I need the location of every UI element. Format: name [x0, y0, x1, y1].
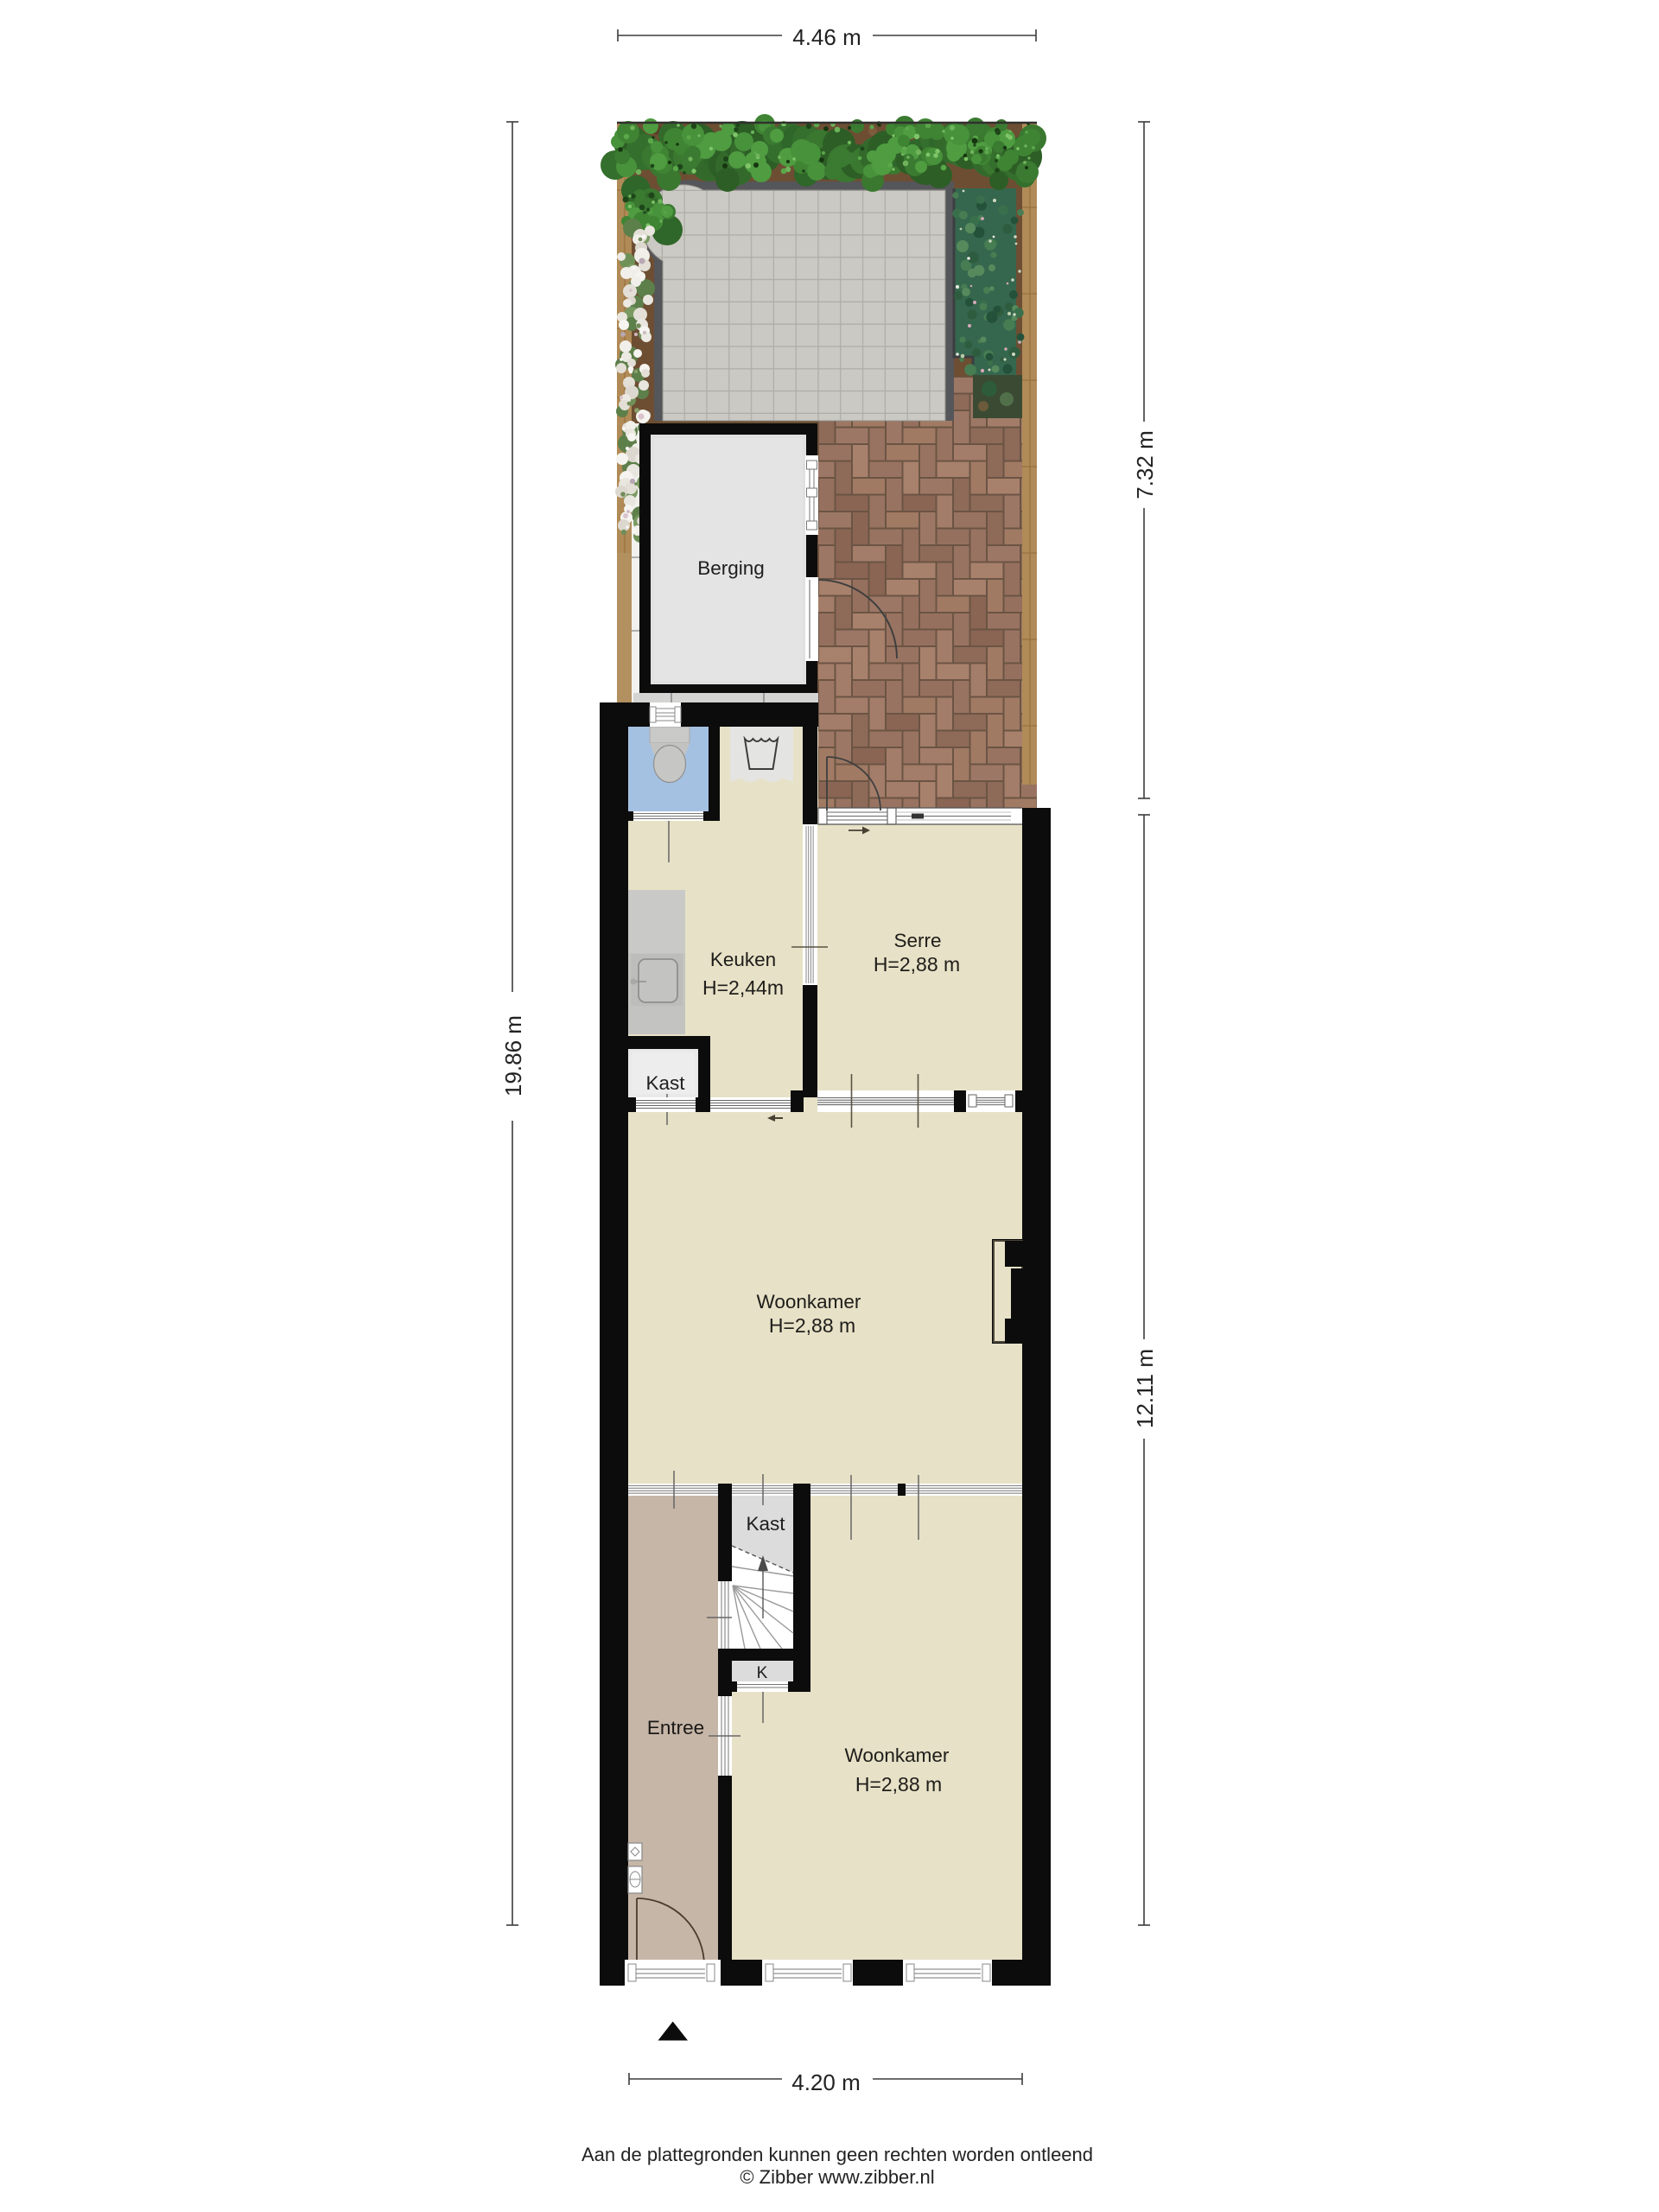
svg-text:4.20 m: 4.20 m: [791, 2069, 861, 2095]
svg-text:H=2,88 m: H=2,88 m: [769, 1314, 855, 1337]
svg-text:H=2,88 m: H=2,88 m: [855, 1773, 942, 1796]
svg-text:Kast: Kast: [746, 1513, 785, 1535]
svg-text:© Zibber www.zibber.nl: © Zibber www.zibber.nl: [740, 2166, 934, 2188]
svg-text:Woonkamer: Woonkamer: [845, 1745, 950, 1766]
svg-text:7.32 m: 7.32 m: [1132, 430, 1158, 499]
svg-text:H=2,44m: H=2,44m: [702, 976, 784, 999]
svg-text:Entree: Entree: [647, 1717, 704, 1738]
svg-text:K: K: [757, 1664, 768, 1682]
svg-text:Aan de plattegronden kunnen ge: Aan de plattegronden kunnen geen rechten…: [582, 2144, 1093, 2165]
svg-text:19.86 m: 19.86 m: [500, 1015, 526, 1096]
svg-text:Woonkamer: Woonkamer: [757, 1291, 861, 1313]
svg-text:H=2,88 m: H=2,88 m: [874, 953, 960, 976]
svg-text:Kast: Kast: [645, 1072, 685, 1094]
svg-text:Berging: Berging: [697, 557, 765, 579]
svg-text:Serre: Serre: [893, 930, 941, 951]
svg-text:4.46 m: 4.46 m: [792, 24, 861, 50]
svg-text:Keuken: Keuken: [710, 949, 776, 970]
svg-text:12.11 m: 12.11 m: [1132, 1349, 1158, 1428]
